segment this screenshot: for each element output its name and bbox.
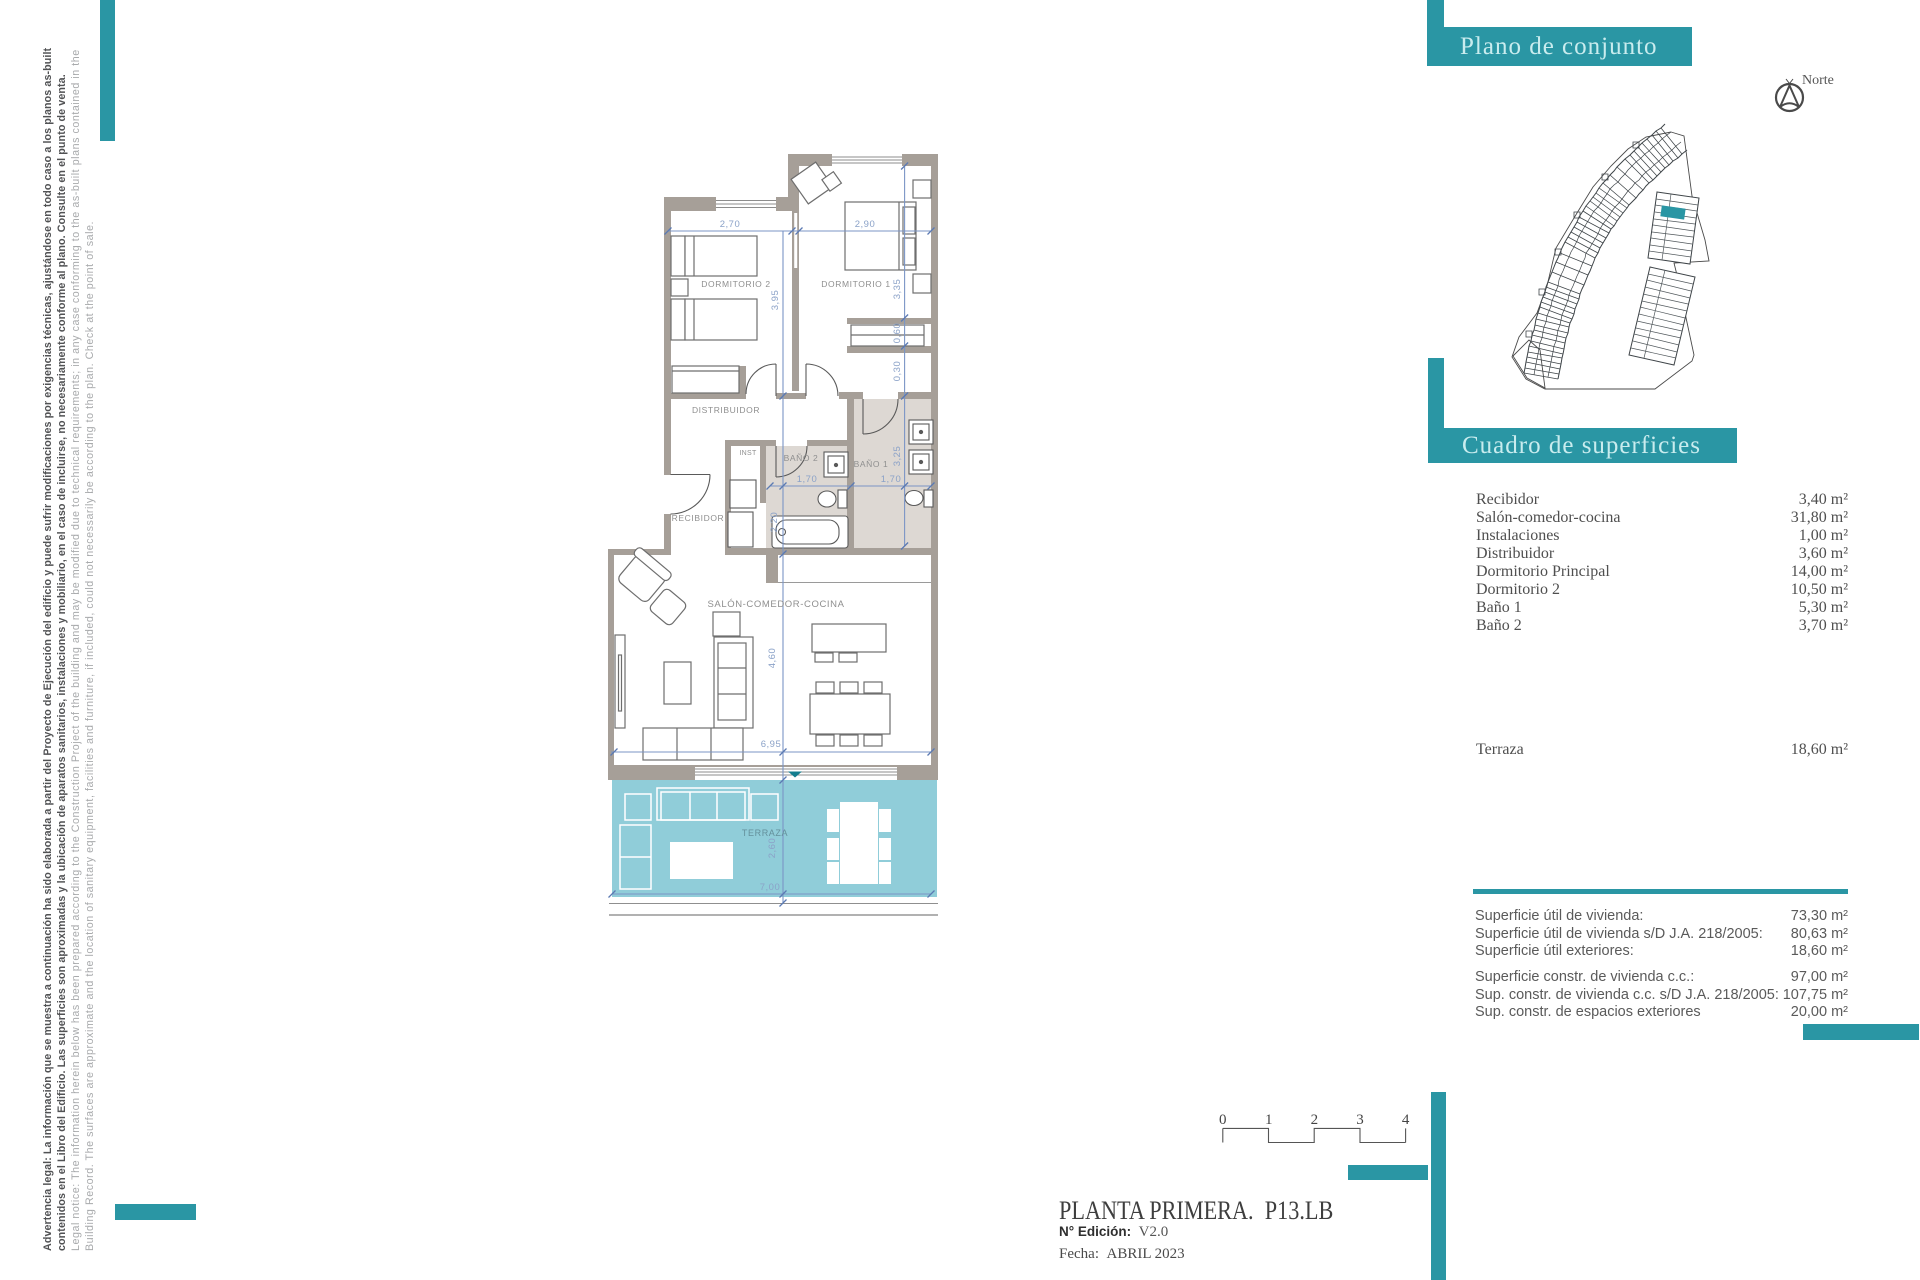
svg-text:2: 2 — [1311, 1112, 1319, 1128]
svg-text:INST: INST — [739, 450, 757, 457]
svg-text:TERRAZA: TERRAZA — [742, 828, 788, 838]
svg-text:BAÑO 1: BAÑO 1 — [854, 459, 889, 469]
svg-text:SALÓN-COMEDOR-COCINA: SALÓN-COMEDOR-COCINA — [707, 599, 844, 610]
svg-text:2,20: 2,20 — [769, 512, 780, 533]
svg-text:1,70: 1,70 — [797, 474, 818, 485]
svg-text:0,30: 0,30 — [892, 361, 903, 382]
svg-text:3,35: 3,35 — [892, 279, 903, 300]
svg-text:0,60: 0,60 — [892, 323, 903, 344]
svg-text:1: 1 — [1265, 1112, 1273, 1128]
svg-text:2,90: 2,90 — [855, 219, 876, 230]
svg-text:BAÑO 2: BAÑO 2 — [784, 453, 819, 463]
svg-text:2,60: 2,60 — [767, 838, 778, 859]
svg-text:RECIBIDOR: RECIBIDOR — [672, 513, 725, 523]
svg-text:DISTRIBUIDOR: DISTRIBUIDOR — [692, 405, 760, 415]
svg-text:6,95: 6,95 — [761, 739, 782, 750]
svg-text:4,60: 4,60 — [767, 648, 778, 669]
svg-text:3,95: 3,95 — [770, 290, 781, 311]
svg-text:3,25: 3,25 — [892, 446, 903, 467]
svg-text:2,70: 2,70 — [720, 219, 741, 230]
svg-text:1,70: 1,70 — [881, 474, 902, 485]
svg-text:0: 0 — [1219, 1112, 1227, 1128]
svg-text:DORMITORIO 1: DORMITORIO 1 — [821, 279, 890, 289]
svg-text:3: 3 — [1356, 1112, 1364, 1128]
svg-text:7,00: 7,00 — [760, 882, 781, 893]
svg-text:4: 4 — [1402, 1112, 1410, 1128]
svg-text:Norte: Norte — [1802, 73, 1834, 88]
svg-text:DORMITORIO 2: DORMITORIO 2 — [701, 279, 770, 289]
